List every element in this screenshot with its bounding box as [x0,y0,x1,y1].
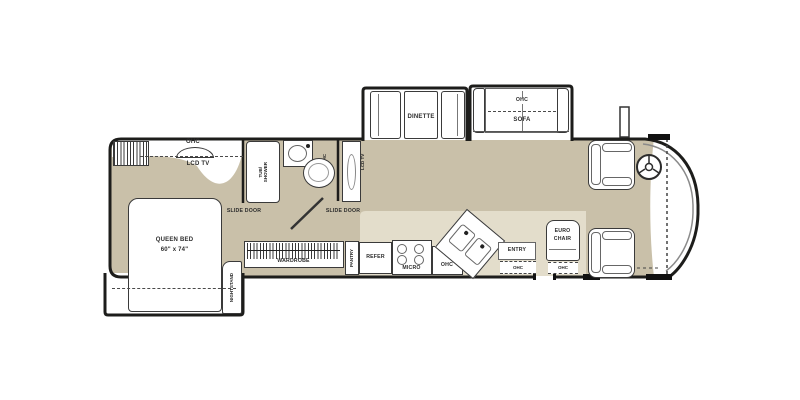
living-lcdtv-label: LCD TV [360,147,365,177]
toilet-bowl [308,163,329,182]
wardrobe-label: WARDROBE [245,259,342,265]
slide-door-left-label: SLIDE DOOR [220,209,268,215]
burner-icon [414,255,424,265]
refer-label: REFER [366,255,385,261]
sink-faucet-icon [480,244,485,249]
dinette-bench-left [370,91,401,139]
tv-screen [347,154,356,190]
burner-icon [414,244,424,254]
wardrobe-hatch [247,243,340,259]
entry-ohc: OHC [500,261,536,274]
steering-wheel-icon [637,155,661,179]
micro-label: MICRO [393,266,430,272]
bath-sink-basin [288,145,307,162]
driver-seat-arm [602,143,632,152]
sofa-front-line [473,131,569,132]
bedroom-ohc-label: OHC [168,139,218,146]
floorplan-base [0,0,800,400]
driver-seat-back [591,144,601,185]
refrigerator: REFER [359,242,392,274]
passenger-seat [588,228,635,278]
burner-icon [397,255,407,265]
euro-chair-label-1: EURO [547,229,578,235]
bedroom-closet [113,141,149,166]
bumper-bottom-right [646,274,672,280]
passenger-seat-arm [602,231,632,240]
sink-faucet-icon [464,230,469,235]
driver-seat-arm [602,177,632,186]
queen-bed: QUEEN BED 60" x 74" [128,198,222,312]
side-mirror [620,107,629,137]
entry-ohc-label: OHC [513,265,523,270]
pantry: PANTRY [345,241,359,275]
euro-chair-ohc: OHC [548,262,578,274]
wardrobe: WARDROBE [244,241,344,268]
stove-micro: MICRO [392,240,432,275]
toilet [303,158,335,188]
pantry-label: PANTRY [349,249,354,267]
tv-cabinet [342,141,361,202]
euro-chair-label-2: CHAIR [547,237,578,243]
passenger-seat-back [591,232,601,273]
sofa-arm-right [557,88,569,133]
passenger-seat-arm [602,265,632,274]
burner-icon [397,244,407,254]
euro-chair: EURO CHAIR [546,220,580,261]
sofa-arm-left [473,88,485,133]
tub-shower: TUB/ SHOWER [246,141,280,203]
wardrobe-rod [247,250,340,251]
dinette-bench-line [378,94,379,136]
sofa-ohc-label: OHC [500,98,544,104]
rv-floorplan: OHC LCD TV QUEEN BED 60" x 74" NIGHTSTAN… [0,0,800,400]
shower-label: SHOWER [263,162,268,182]
euro-ohc-label: OHC [558,265,568,270]
bath-faucet-icon [306,144,310,148]
entry-label: ENTRY [508,248,526,254]
dinette-label: DINETTE [400,114,442,121]
bed-slide-dash [112,288,236,289]
queen-bed-size-label: 60" x 74" [129,247,220,254]
euro-chair-seat-line [549,249,576,250]
sofa-label: SOFA [500,117,544,124]
sofa-slide-dash [488,111,556,112]
driver-seat [588,140,635,190]
dinette-bench-line [457,94,458,136]
bedroom-slide-dash [140,156,243,157]
entry-area: ENTRY [498,242,536,260]
queen-bed-label: QUEEN BED [129,237,220,244]
slide-door-right-label: SLIDE DOOR [319,209,367,215]
bumper-top [648,134,670,140]
dinette-bench-right [441,91,465,139]
bedroom-lcdtv-label: LCD TV [176,161,220,168]
